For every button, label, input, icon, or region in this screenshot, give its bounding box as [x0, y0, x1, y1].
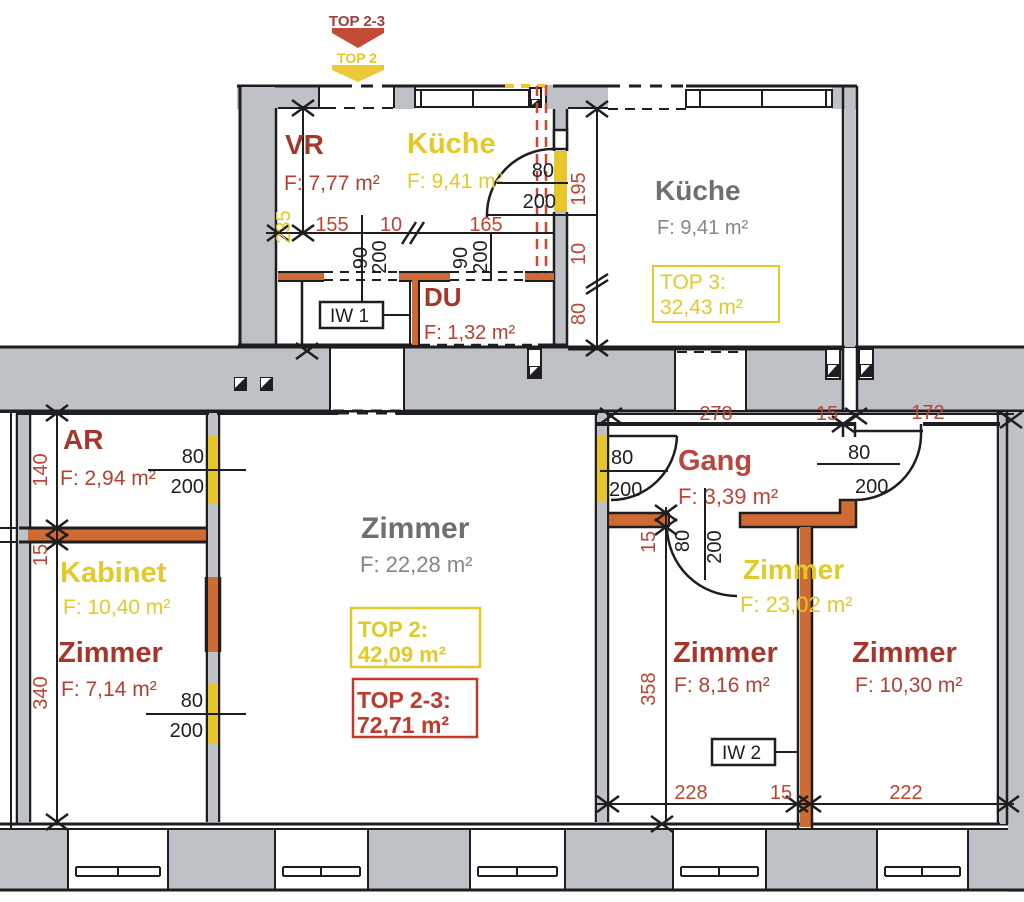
svg-text:AR: AR [63, 424, 103, 455]
svg-text:195: 195 [568, 172, 590, 205]
svg-text:340: 340 [30, 676, 52, 709]
svg-text:222: 222 [889, 782, 922, 804]
svg-text:Zimmer: Zimmer [743, 554, 844, 585]
svg-text:140: 140 [30, 453, 52, 486]
svg-text:Zimmer: Zimmer [361, 512, 470, 545]
svg-text:F: 3,39 m²: F: 3,39 m² [678, 484, 778, 509]
svg-text:32,43 m²: 32,43 m² [660, 296, 743, 319]
svg-text:Zimmer: Zimmer [852, 637, 957, 669]
svg-text:200: 200 [523, 191, 556, 213]
svg-text:F: 7,77 m²: F: 7,77 m² [284, 172, 380, 195]
svg-text:80: 80 [848, 442, 870, 464]
svg-text:TOP 2: TOP 2 [337, 50, 377, 66]
svg-text:200: 200 [704, 530, 726, 563]
svg-text:200: 200 [170, 720, 203, 742]
svg-text:165: 165 [469, 214, 502, 236]
svg-text:DU: DU [424, 282, 462, 312]
svg-text:F: 7,14 m²: F: 7,14 m² [61, 678, 157, 701]
svg-text:Zimmer: Zimmer [673, 637, 778, 669]
svg-text:F: 22,28 m²: F: 22,28 m² [360, 552, 472, 577]
svg-text:358: 358 [638, 672, 660, 705]
svg-text:10: 10 [380, 214, 402, 236]
svg-text:F: 23,02 m²: F: 23,02 m² [740, 592, 852, 617]
svg-text:80: 80 [182, 446, 204, 468]
svg-text:200: 200 [609, 479, 642, 501]
svg-text:10: 10 [568, 243, 590, 265]
svg-text:200: 200 [855, 476, 888, 498]
svg-text:15: 15 [30, 544, 52, 566]
svg-text:155: 155 [315, 214, 348, 236]
svg-text:200: 200 [470, 240, 492, 273]
svg-text:200: 200 [369, 240, 391, 273]
svg-text:Zimmer: Zimmer [58, 637, 163, 669]
svg-text:278: 278 [699, 403, 732, 425]
svg-text:72,71 m²: 72,71 m² [357, 712, 449, 738]
svg-text:Gang: Gang [678, 445, 752, 477]
svg-text:TOP 2-3: TOP 2-3 [329, 13, 385, 30]
svg-text:F: 10,30 m²: F: 10,30 m² [855, 674, 962, 697]
svg-text:172: 172 [911, 402, 944, 424]
svg-text:Kabinet: Kabinet [60, 557, 167, 589]
svg-text:80: 80 [611, 447, 633, 469]
svg-text:80: 80 [672, 530, 694, 552]
svg-text:15: 15 [638, 531, 660, 553]
svg-text:TOP 3:: TOP 3: [660, 271, 726, 294]
svg-text:15: 15 [770, 782, 792, 804]
svg-text:235: 235 [273, 210, 295, 243]
svg-text:80: 80 [568, 303, 590, 325]
svg-text:Küche: Küche [407, 128, 496, 160]
svg-text:15: 15 [816, 403, 838, 425]
svg-text:F: 2,94 m²: F: 2,94 m² [60, 467, 156, 490]
svg-text:F: 1,32 m²: F: 1,32 m² [424, 322, 515, 344]
svg-text:VR: VR [285, 129, 324, 160]
svg-text:F: 9,41 m²: F: 9,41 m² [407, 170, 503, 193]
svg-text:F: 10,40 m²: F: 10,40 m² [63, 596, 170, 619]
svg-text:228: 228 [674, 782, 707, 804]
svg-text:90: 90 [450, 247, 472, 269]
svg-text:IW 1: IW 1 [330, 306, 369, 327]
svg-text:80: 80 [181, 690, 203, 712]
svg-text:TOP 2:: TOP 2: [358, 617, 428, 642]
svg-text:80: 80 [532, 160, 554, 182]
svg-text:TOP 2-3:: TOP 2-3: [357, 687, 451, 713]
svg-text:42,09 m²: 42,09 m² [358, 642, 446, 667]
svg-text:IW 2: IW 2 [722, 743, 761, 764]
svg-text:200: 200 [171, 476, 204, 498]
svg-text:Küche: Küche [655, 175, 741, 206]
svg-text:F: 9,41 m²: F: 9,41 m² [657, 217, 748, 239]
svg-text:F: 8,16 m²: F: 8,16 m² [674, 674, 770, 697]
